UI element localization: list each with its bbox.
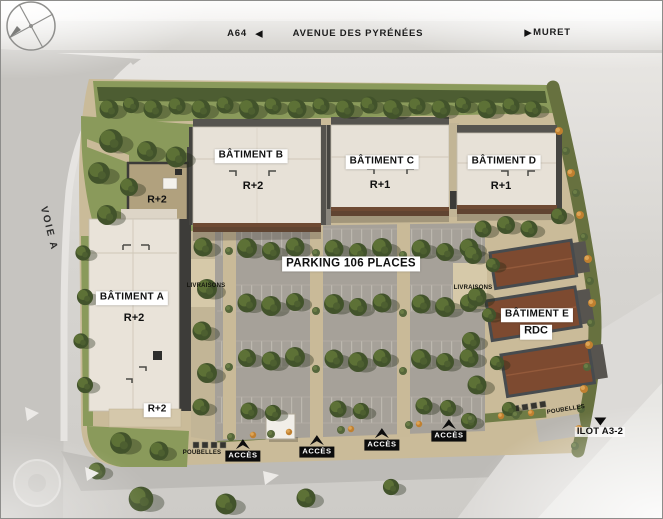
acces-label: ACCÈS (225, 451, 260, 462)
site-plan-canvas: A64 ◀ AVENUE DES PYRÉNÉES ▶ MURET VOIE A… (0, 0, 663, 519)
acces-marker-3: ACCÈS (364, 428, 399, 451)
building-c (327, 117, 460, 223)
building-d-name: BÂTIMENT D (468, 155, 541, 169)
building-b-floors: R+2 (243, 181, 264, 193)
street-name-label: AVENUE DES PYRÉNÉES (293, 29, 424, 39)
east-arrow-icon: ▶ (525, 28, 532, 37)
acces-label: ACCÈS (431, 431, 466, 442)
building-d-floors: R+1 (491, 181, 512, 193)
west-arrow-icon: ◀ (256, 29, 263, 38)
roundabout (14, 460, 60, 506)
building-a-floors: R+2 (124, 313, 145, 325)
building-a-name: BÂTIMENT A (96, 291, 168, 305)
acces-arrow-icon (235, 439, 250, 450)
destination-label: MURET (533, 28, 571, 38)
building-c-floors: R+1 (370, 180, 391, 192)
building-e-name: BÂTIMENT E (501, 308, 573, 322)
livraisons-east-label: LIVRAISONS (454, 285, 493, 291)
acces-arrow-icon (374, 428, 389, 439)
acces-label: ACCÈS (364, 440, 399, 451)
building-e-floors: RDC (520, 325, 552, 340)
parking-label: PARKING 106 PLACES (282, 256, 420, 271)
building-annex-floors: R+2 (147, 194, 167, 205)
livraisons-west-label: LIVRAISONS (187, 283, 226, 289)
building-d (457, 125, 562, 221)
acces-label: ACCÈS (299, 447, 334, 458)
acces-marker-1: ACCÈS (225, 439, 260, 462)
highway-label: A64 (227, 29, 247, 39)
acces-arrow-icon (441, 419, 456, 430)
poubelles-southwest-label: POUBELLES (183, 450, 221, 456)
down-arrow-icon (593, 417, 606, 426)
acces-marker-4: ACCÈS (431, 419, 466, 442)
acces-marker-2: ACCÈS (299, 435, 334, 458)
ilot-marker: ILOT A3-2 (575, 417, 625, 437)
building-b-name: BÂTIMENT B (215, 149, 288, 163)
acces-arrow-icon (309, 435, 324, 446)
building-c-name: BÂTIMENT C (346, 155, 419, 169)
building-a-south-floors: R+2 (144, 403, 171, 417)
compass-icon (3, 1, 65, 59)
ilot-label: ILOT A3-2 (575, 427, 625, 437)
